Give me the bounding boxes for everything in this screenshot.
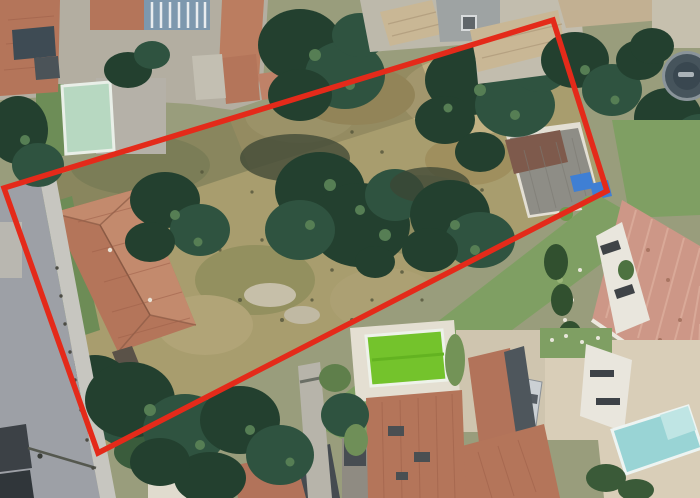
terrace-plant (618, 260, 634, 280)
skylight-3 (396, 472, 408, 480)
pergola-slats (152, 2, 205, 28)
pale-green-pool (62, 82, 114, 154)
skylight-1 (388, 426, 404, 436)
street-pole (37, 453, 42, 458)
window-slit-1 (590, 370, 614, 377)
roof-bc-big (366, 390, 466, 498)
shed-roof-1 (222, 54, 260, 104)
skylight-2 (414, 452, 430, 462)
shed-pad (192, 54, 226, 100)
dark-shed (34, 56, 60, 80)
aerial-photo (0, 0, 700, 498)
blue-pergola-pool (144, 0, 210, 30)
solar-panels (12, 26, 56, 60)
aerial-photo-svg (0, 0, 700, 498)
chimney (462, 16, 476, 30)
dark-roof-sliver-2 (0, 470, 34, 498)
window-slit-2 (596, 398, 620, 405)
